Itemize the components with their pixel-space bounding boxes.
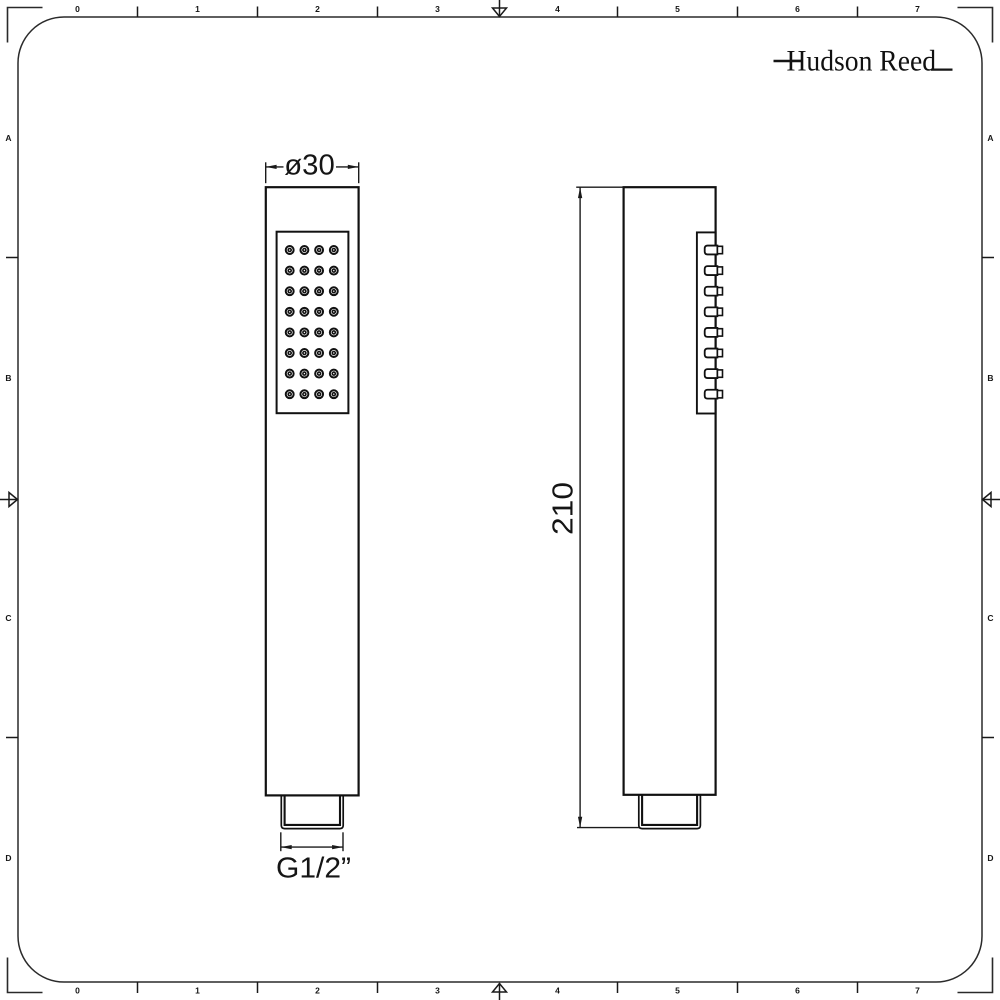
svg-text:0: 0 [75,986,80,996]
svg-text:G1/2”: G1/2” [276,853,351,885]
svg-text:Hudson Reed: Hudson Reed [787,46,937,78]
svg-text:C: C [987,613,993,623]
svg-text:0: 0 [75,4,80,14]
svg-text:A: A [987,133,993,143]
svg-text:6: 6 [795,986,800,996]
svg-text:3: 3 [435,986,440,996]
svg-text:C: C [5,613,11,623]
svg-text:B: B [5,373,11,383]
svg-text:6: 6 [795,4,800,14]
svg-text:4: 4 [555,4,560,14]
svg-text:210: 210 [547,482,579,535]
svg-text:4: 4 [555,986,560,996]
svg-text:D: D [987,853,993,863]
svg-text:7: 7 [915,4,920,14]
svg-text:2: 2 [315,4,320,14]
svg-text:2: 2 [315,986,320,996]
svg-text:D: D [5,853,11,863]
svg-text:3: 3 [435,4,440,14]
svg-text:5: 5 [675,4,680,14]
svg-text:1: 1 [195,4,200,14]
svg-text:ø30: ø30 [284,150,335,182]
svg-text:B: B [987,373,993,383]
svg-text:7: 7 [915,986,920,996]
svg-text:A: A [5,133,11,143]
svg-text:5: 5 [675,986,680,996]
svg-text:1: 1 [195,986,200,996]
